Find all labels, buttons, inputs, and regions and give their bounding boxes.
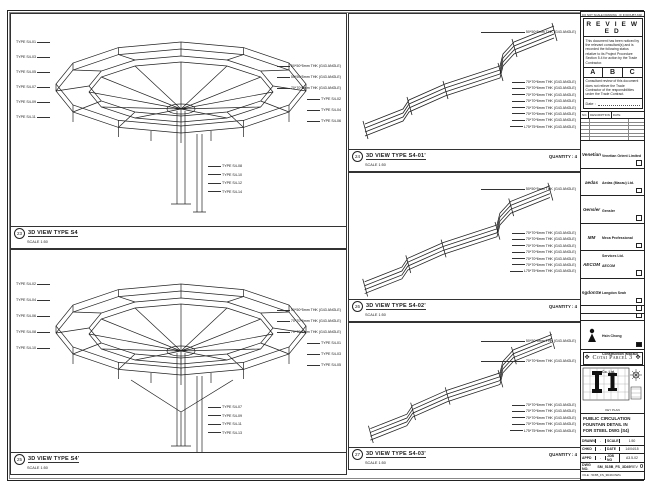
callout-label: TYPE S4-02 (307, 97, 341, 101)
leader-line (512, 424, 525, 425)
leader-line (37, 348, 50, 349)
callout-label: 70*70*6mm THK (G43 ANGLE) (512, 409, 576, 413)
leader-line (512, 82, 525, 83)
leader-line (37, 284, 50, 285)
hsin-chong-logo (582, 323, 601, 348)
leader-line (277, 321, 290, 322)
callout-label: 70*70*6mm THK (G43 ANGLE) (512, 112, 576, 116)
callout-label: 70*70*6mm THK (G43 ANGLE) (512, 80, 576, 84)
leader-line (512, 245, 525, 246)
company-logo: aedas (582, 170, 601, 194)
callout-label: 70*70*6mm THK (G43 ANGLE) (512, 263, 576, 267)
info-value: 1:50 (620, 439, 644, 443)
leader-line (481, 189, 525, 190)
panel-title: 3D VIEW TYPE S4-03' (366, 451, 426, 459)
dwg-label: DWG NO. (582, 463, 595, 471)
panel-title: 3D VIEW TYPE S4' (28, 456, 79, 464)
leader-line (307, 343, 320, 344)
stamp-date-label: Date : (586, 102, 596, 106)
consultant-list: Venetian Venetian Orient Limited aedas A… (581, 141, 644, 306)
company-name: AECOM (602, 264, 615, 268)
detail-number-bubble: 23 (14, 228, 25, 239)
panel-scale: SCALE 1:50 (27, 240, 343, 244)
callout-label: 50*50*5mm THK (G43 ANGLE) (481, 339, 576, 343)
info-value: - (596, 439, 606, 443)
callout-label: 70*70*6mm THK (G43 ANGLE) (512, 257, 576, 261)
callout-label: TYPE S4-02 (16, 282, 50, 286)
leader-line (307, 110, 320, 111)
callout-label: 50*50*5mm THK (G43 ANGLE) (277, 64, 341, 68)
info-label: CHKD (581, 447, 596, 451)
callout-label: 70*70*6mm THK (G43 ANGLE) (512, 416, 576, 420)
callout-label: 70*70*6mm THK (G43 ANGLE) (512, 99, 576, 103)
callout-label: 70*70*6mm THK (G43 ANGLE) (277, 86, 341, 90)
leader-line (37, 42, 50, 43)
company-name: Langdon Seah (602, 291, 626, 295)
callout-stack-side: 70*70*6mm THK (G43 ANGLE)70*70*6mm THK (… (510, 403, 576, 433)
rev-value: 0 (640, 464, 643, 470)
company-logo: AECOM (582, 253, 601, 277)
info-row: APPD - JOB NO A3.5-02 (581, 454, 644, 462)
callout-stack-top: 50*50*5mm THK (G43 ANGLE)70*70*6mm THK (… (481, 339, 576, 363)
leader-line (277, 88, 290, 89)
callout-label: L75*75*6mm THK (G43 ANGLE) (510, 269, 576, 273)
panel-scale: SCALE 1:50 (27, 466, 343, 470)
dwg-number: SM_515B_FS_3D49 (597, 465, 630, 469)
callout-label: TYPE S4-05 (16, 70, 50, 74)
leader-line (512, 258, 525, 259)
revision-header-cell: DESCRIPTION (589, 112, 612, 118)
callout-stack-side: 70*70*6mm THK (G43 ANGLE)70*70*6mm THK (… (510, 80, 576, 129)
callout-label: L75*75*6mm THK (G43 ANGLE) (510, 125, 576, 129)
callout-label: TYPE S4-11 (16, 115, 50, 119)
leader-line (510, 126, 523, 127)
leader-line (512, 405, 525, 406)
stamp-paragraph-1: This document has been noticed by the re… (584, 37, 642, 68)
callout-label: 70*70*6mm THK (G43 ANGLE) (481, 359, 576, 363)
panel-title: 3D VIEW TYPE S4-01' (366, 153, 426, 161)
callout-label: 70*70*6mm THK (G43 ANGLE) (512, 118, 576, 122)
status-checkbox (636, 160, 642, 166)
revision-header-cell: DATE (612, 112, 644, 118)
callout-label: 50*50*5mm THK (G43 ANGLE) (481, 30, 576, 34)
key-plan-caption: KEY PLAN (581, 408, 644, 412)
stamp-status-option: C (623, 68, 642, 77)
stamp-title: R E V I E W E D (584, 19, 642, 37)
leader-line (37, 57, 50, 58)
consultant-row: Gensler Gensler (581, 196, 644, 224)
leader-line (307, 121, 320, 122)
viewport-3d-type-s4-02: 50*50*5mm THK (G43 ANGLE) 70*70*6mm THK … (348, 172, 581, 322)
leader-line (512, 107, 525, 108)
callout-label: TYPE S4-01 (16, 40, 50, 44)
callout-label: TYPE S4-01 (307, 341, 341, 345)
company-logo: Venetian (582, 143, 601, 167)
leader-line (481, 341, 525, 342)
leader-line (481, 361, 525, 362)
consultant-row: LangdonSeah Langdon Seah (581, 279, 644, 307)
callout-label: TYPE S4-03 (16, 55, 50, 59)
leader-line (208, 174, 221, 175)
leader-line (512, 417, 525, 418)
panel-title: 3D VIEW TYPE S4-02' (366, 303, 426, 311)
callout-label: L75*75*6mm THK (G43 ANGLE) (510, 429, 576, 433)
callout-stack-top: 50*50*5mm THK (G43 ANGLE) (481, 30, 576, 34)
callout-label: 70*70*6mm THK (G43 ANGLE) (512, 250, 576, 254)
company-name: Aedas (Macau) Ltd. (602, 181, 634, 185)
callout-label: 50*50*5mm THK (G43 ANGLE) (277, 75, 341, 79)
viewport-3d-type-s4-03: 50*50*5mm THK (G43 ANGLE)70*70*6mm THK (… (348, 322, 581, 470)
leader-line (512, 113, 525, 114)
leader-line (277, 77, 290, 78)
callout-label: 70*70*6mm THK (G43 ANGLE) (512, 106, 576, 110)
company-logo: MM (582, 225, 601, 249)
leader-line (512, 88, 525, 89)
callout-label: TYPE S4-06 (16, 314, 50, 318)
leader-line (37, 72, 50, 73)
panel-title-bar: 27 3D VIEW TYPE S4-03' QUANTITY : 4 SCAL… (349, 447, 580, 469)
callout-stack-left: TYPE S4-02TYPE S4-04TYPE S4-06TYPE S4-08… (16, 282, 50, 350)
callout-label: 70*70*6mm THK (G43 ANGLE) (277, 319, 341, 323)
consultant-row: aedas Aedas (Macau) Ltd. (581, 169, 644, 197)
callout-label: 50*50*5mm THK (G43 ANGLE) (481, 187, 576, 191)
info-label: APPD (581, 456, 596, 460)
leader-line (512, 411, 525, 412)
leader-line (512, 233, 525, 234)
leader-line (512, 101, 525, 102)
revision-table-header: NO.DESCRIPTIONDATE (581, 111, 644, 119)
panel-title-bar: 26 3D VIEW TYPE S4-02' QUANTITY : 4 SCAL… (349, 299, 580, 321)
callout-label: TYPE S4-13 (208, 431, 242, 435)
callout-label: 70*70*6mm THK (G43 ANGLE) (512, 403, 576, 407)
callout-stack-left: TYPE S4-01TYPE S4-03TYPE S4-05TYPE S4-07… (16, 40, 50, 119)
company-logo: LangdonSeah (582, 280, 601, 304)
callout-label: 70*70*6mm THK (G43 ANGLE) (277, 330, 341, 334)
info-label: DATE (606, 447, 620, 451)
leader-line (37, 117, 50, 118)
quantity-note: QUANTITY : 4 (549, 452, 577, 457)
key-plan-drawing (582, 367, 643, 407)
company-logo: Gensler (582, 198, 601, 222)
callout-stack-side: 70*70*6mm THK (G43 ANGLE)70*70*6mm THK (… (510, 231, 576, 273)
leader-line (512, 120, 525, 121)
panel-scale: SCALE 1:50 (365, 163, 577, 167)
leader-line (512, 94, 525, 95)
leader-line (307, 99, 320, 100)
callout-label: TYPE S4-08 (16, 330, 50, 334)
blank-consultant-row (581, 306, 644, 314)
status-checkbox (636, 298, 642, 304)
panel-title-bar: 25 3D VIEW TYPE S4' SCALE 1:50 (11, 452, 346, 474)
status-checkbox (636, 313, 642, 319)
info-value: A3.5-02 (620, 456, 644, 460)
sheet-note-strip: DO NOT SCALE DRAWING · IF IN DOUBT ASK ·… (581, 12, 644, 17)
leader-line (481, 32, 525, 33)
detail-number-bubble: 26 (352, 301, 363, 312)
leader-line (208, 183, 221, 184)
consultant-row: MM Meca Professional Services Ltd. (581, 224, 644, 252)
status-checkbox (636, 243, 642, 249)
callout-stack-right: 50*50*5mm THK (G43 ANGLE)50*50*5mm THK (… (277, 64, 341, 123)
panel-title-bar: 24 3D VIEW TYPE S4-01' QUANTITY : 4 SCAL… (349, 149, 580, 171)
leader-line (277, 310, 290, 311)
callout-label: 70*70*6mm THK (G43 ANGLE) (512, 422, 576, 426)
callout-stack-bottom: TYPE S4-08TYPE S4-10TYPE S4-12TYPE S4-14 (208, 164, 242, 194)
stamp-status-option: B (603, 68, 623, 77)
leader-line (208, 191, 221, 192)
company-name: Gensler (602, 209, 615, 213)
status-checkbox (636, 215, 642, 221)
callout-label: TYPE S4-10 (16, 346, 50, 350)
drawing-title-line: FOR STEEL DWG (S4) (583, 428, 642, 434)
callout-label: 70*70*6mm THK (G43 ANGLE) (512, 244, 576, 248)
leader-line (307, 365, 320, 366)
info-value: 14/04/15 (620, 447, 644, 451)
leader-line (307, 354, 320, 355)
callout-label: TYPE S4-03 (307, 352, 341, 356)
callout-label: TYPE S4-04 (16, 298, 50, 302)
leader-line (512, 264, 525, 265)
leader-line (512, 239, 525, 240)
leader-line (208, 432, 221, 433)
info-table: DRAWN - SCALE 1:50 CHKD - DATE 14/04/15 … (581, 437, 644, 462)
callout-label: 70*70*6mm THK (G43 ANGLE) (512, 86, 576, 90)
stamp-status-option: A (584, 68, 604, 77)
leader-line (512, 252, 525, 253)
status-checkbox (636, 305, 642, 311)
leader-line (510, 430, 523, 431)
callout-stack-right: 50*50*5mm THK (G43 ANGLE)70*70*6mm THK (… (277, 308, 341, 367)
viewport-3d-type-s4: TYPE S4-01TYPE S4-03TYPE S4-05TYPE S4-07… (10, 13, 347, 249)
detail-number-bubble: 24 (352, 151, 363, 162)
consultant-row: AECOM AECOM (581, 251, 644, 279)
callout-label: TYPE S4-11 (208, 422, 242, 426)
leader-line (37, 332, 50, 333)
info-label: DRAWN (581, 439, 596, 443)
leader-line (277, 332, 290, 333)
viewport-3d-type-s4-prime: TYPE S4-02TYPE S4-04TYPE S4-06TYPE S4-08… (10, 249, 347, 475)
quantity-note: QUANTITY : 4 (549, 154, 577, 159)
rev-label: REV (631, 465, 638, 469)
callout-label: 50*50*5mm THK (G43 ANGLE) (277, 308, 341, 312)
info-label: SCALE (606, 439, 620, 443)
consultant-row: Venetian Venetian Orient Limited (581, 141, 644, 169)
quantity-note: QUANTITY : 4 (549, 304, 577, 309)
panel-title-bar: 23 3D VIEW TYPE S4 SCALE 1:50 (11, 226, 346, 248)
drawing-number-row: DWG NO. SM_515B_FS_3D49 REV 0 (581, 463, 644, 472)
drawing-sheet: TYPE S4-01TYPE S4-03TYPE S4-05TYPE S4-07… (0, 0, 650, 488)
viewport-3d-type-s4-01: 50*50*5mm THK (G43 ANGLE) 70*70*6mm THK … (348, 13, 581, 172)
callout-label: TYPE S4-07 (208, 405, 242, 409)
stamp-date-line (598, 101, 640, 106)
callout-label: TYPE S4-08 (208, 164, 242, 168)
callout-label: TYPE S4-05 (307, 363, 341, 367)
callout-label: 70*70*6mm THK (G43 ANGLE) (512, 231, 576, 235)
reviewed-stamp: R E V I E W E D This document has been n… (583, 18, 643, 109)
callout-label: TYPE S4-07 (16, 85, 50, 89)
leader-line (510, 271, 523, 272)
stamp-status-options: ABC (584, 68, 642, 78)
detail-number-bubble: 27 (352, 449, 363, 460)
callout-label: 70*70*6mm THK (G43 ANGLE) (512, 93, 576, 97)
leader-line (37, 87, 50, 88)
callout-stack-top: 50*50*5mm THK (G43 ANGLE) (481, 187, 576, 191)
revision-header-cell: NO. (581, 112, 589, 118)
callout-label: TYPE S4-14 (208, 190, 242, 194)
blank-consultant-row (581, 314, 644, 322)
leader-line (208, 407, 221, 408)
callout-label: TYPE S4-04 (307, 108, 341, 112)
stamp-paragraph-2: Consultant review of this document does … (584, 78, 642, 100)
callout-stack-bottom: TYPE S4-07TYPE S4-09TYPE S4-11TYPE S4-13 (208, 405, 242, 435)
callout-label: TYPE S4-09 (208, 414, 242, 418)
file-reference: FILE : 515B_FS_3D49.DWG (581, 472, 644, 480)
panel-title: 3D VIEW TYPE S4 (28, 230, 78, 238)
leader-line (208, 424, 221, 425)
panel-scale: SCALE 1:50 (365, 461, 577, 465)
info-row: DRAWN - SCALE 1:50 (581, 437, 644, 445)
title-block: DO NOT SCALE DRAWING · IF IN DOUBT ASK ·… (580, 11, 645, 480)
stamp-date-row: Date : (584, 99, 642, 108)
leader-line (37, 316, 50, 317)
leader-line (277, 66, 290, 67)
leader-line (37, 102, 50, 103)
status-checkbox (636, 270, 642, 276)
callout-label: TYPE S4-10 (208, 173, 242, 177)
leader-line (208, 166, 221, 167)
detail-number-bubble: 25 (14, 454, 25, 465)
drawing-title: PUBLIC CIRCULATIONFOUNTAIN DETAIL INFOR … (581, 414, 644, 438)
leader-line (208, 415, 221, 416)
callout-label: TYPE S4-06 (307, 119, 341, 123)
status-checkbox (636, 342, 642, 348)
panel-scale: SCALE 1:50 (365, 313, 577, 317)
key-plan: KEY PLAN (581, 366, 644, 414)
leader-line (37, 300, 50, 301)
company-name: Venetian Orient Limited (602, 154, 641, 158)
info-value: - (596, 447, 606, 451)
callout-label: TYPE S4-12 (208, 181, 242, 185)
contractor-row: Hsin Chong Construction (Macau) Co. Ltd. (581, 321, 644, 350)
status-checkbox (636, 188, 642, 194)
info-value: - (596, 456, 606, 460)
callout-label: TYPE S4-09 (16, 100, 50, 104)
info-label: JOB NO (606, 454, 620, 462)
callout-label: 70*70*6mm THK (G43 ANGLE) (512, 237, 576, 241)
